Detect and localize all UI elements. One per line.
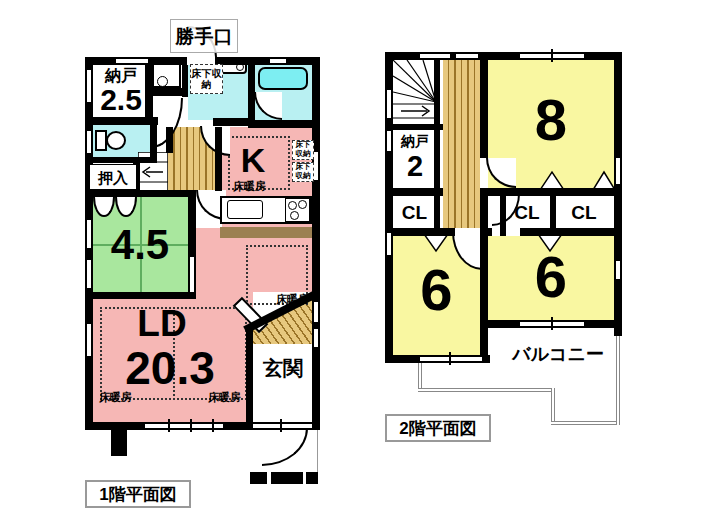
wall	[385, 228, 455, 236]
underfloor-storage-label: 床下収納	[292, 140, 314, 160]
burner-icon	[290, 211, 299, 220]
porch-wall	[250, 472, 267, 484]
window	[116, 57, 148, 65]
wall	[385, 188, 443, 196]
counter-bar	[220, 227, 312, 238]
window	[385, 131, 393, 151]
window	[85, 220, 93, 248]
window-tick	[280, 419, 282, 432]
closet-label: CL	[504, 199, 550, 225]
room-size-6-left: 6	[393, 248, 480, 332]
window	[85, 70, 93, 102]
window	[420, 52, 450, 60]
balcony-label: バルコニー	[508, 344, 608, 364]
wall	[480, 188, 488, 363]
wall	[520, 228, 622, 236]
balcony-line	[551, 421, 620, 425]
room-label-nando: 納戸	[95, 67, 147, 84]
room-size-6-right: 6	[488, 238, 614, 316]
window	[312, 302, 320, 322]
wall	[248, 57, 255, 120]
window-tick	[449, 352, 451, 365]
floorplan-canvas: 床暖房 床暖房 床暖房 床暖房 床下収納 床下収納 床下収納 勝手口 納戸 2.…	[0, 0, 705, 525]
burner-icon	[298, 200, 307, 209]
wall	[215, 127, 222, 191]
window	[420, 355, 482, 363]
wall	[85, 117, 158, 125]
window	[270, 57, 286, 65]
wall	[385, 124, 443, 130]
wall-porch-stub	[111, 430, 127, 456]
floor-heating-label: 床暖房	[276, 292, 309, 307]
room-size-ld: 20.3	[108, 342, 232, 394]
balcony-line	[616, 328, 620, 425]
washer-drain-icon	[157, 76, 168, 87]
room-label-katteguchi: 勝手口	[170, 19, 238, 53]
sliding-door	[188, 257, 196, 292]
window-tick	[551, 317, 553, 330]
window	[614, 261, 622, 279]
window	[456, 52, 478, 60]
room-label-kitchen: K	[235, 140, 271, 180]
floor1-caption: 1階平面図	[85, 480, 191, 508]
room-size-washitsu: 4.5	[98, 220, 182, 270]
window-tick	[190, 419, 192, 432]
hall-wood-floor-2f	[443, 60, 480, 228]
toilet-bowl-fixture	[106, 131, 126, 150]
wall	[213, 118, 248, 126]
balcony-line	[418, 388, 555, 392]
window	[385, 233, 393, 255]
room-size-8: 8	[488, 80, 614, 160]
window-tick	[551, 49, 553, 62]
wall	[246, 330, 253, 430]
kitchen-sink-fixture	[227, 200, 263, 219]
room-size-nando: 2.5	[93, 84, 149, 116]
window	[385, 90, 393, 118]
window-tick	[168, 419, 170, 432]
wall	[480, 52, 488, 158]
stairs-2f	[393, 60, 438, 132]
window	[614, 158, 622, 184]
room-label-genkan: 玄関	[258, 355, 308, 381]
wall	[188, 197, 196, 257]
wall	[483, 228, 492, 236]
closet-label: CL	[393, 199, 436, 225]
window	[312, 329, 320, 347]
wall	[148, 88, 185, 96]
underfloor-storage-label: 床下収納	[292, 162, 314, 182]
floor-heating-label: 床暖房	[233, 179, 266, 194]
wall	[85, 292, 196, 299]
wall	[312, 57, 320, 430]
wall	[85, 190, 196, 197]
floor2-caption: 2階平面図	[385, 414, 491, 442]
burner-icon	[288, 201, 297, 210]
balcony-line	[551, 388, 555, 425]
wall	[166, 127, 173, 153]
closet-label: CL	[554, 199, 614, 225]
entrance-sliding-door	[253, 422, 312, 430]
room-label-nando-2f: 納戸	[396, 133, 434, 149]
room-label-ld: LD	[130, 303, 194, 343]
room-size-nando-2f: 2	[396, 149, 434, 183]
wall	[488, 188, 622, 196]
porch-wall	[271, 472, 303, 484]
wall	[85, 157, 152, 163]
underfloor-storage-label: 床下収納	[190, 64, 223, 94]
wall	[248, 120, 320, 128]
closet-chevron	[540, 170, 564, 190]
window	[85, 324, 93, 356]
window	[85, 131, 93, 153]
bathtub-fixture	[258, 67, 308, 90]
porch-wall	[306, 472, 318, 484]
closet-chevron	[593, 170, 615, 190]
window-tick	[212, 419, 214, 432]
window	[85, 260, 93, 288]
room-label-oshiire: 押入	[89, 164, 137, 190]
